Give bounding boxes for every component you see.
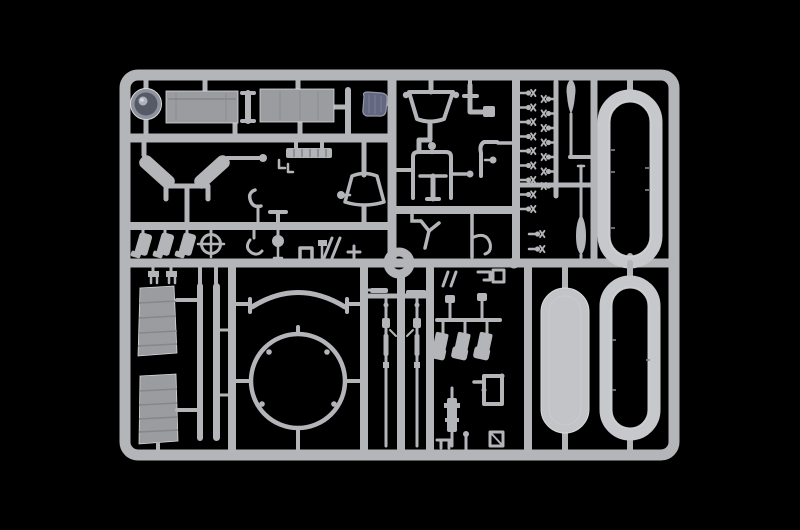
part-spring-strip-1: [197, 263, 203, 441]
junction-boss-top: [510, 70, 521, 81]
sprue-photo: [0, 0, 800, 530]
junction-boss-mid: [509, 258, 520, 269]
photo-stage: [0, 0, 800, 530]
